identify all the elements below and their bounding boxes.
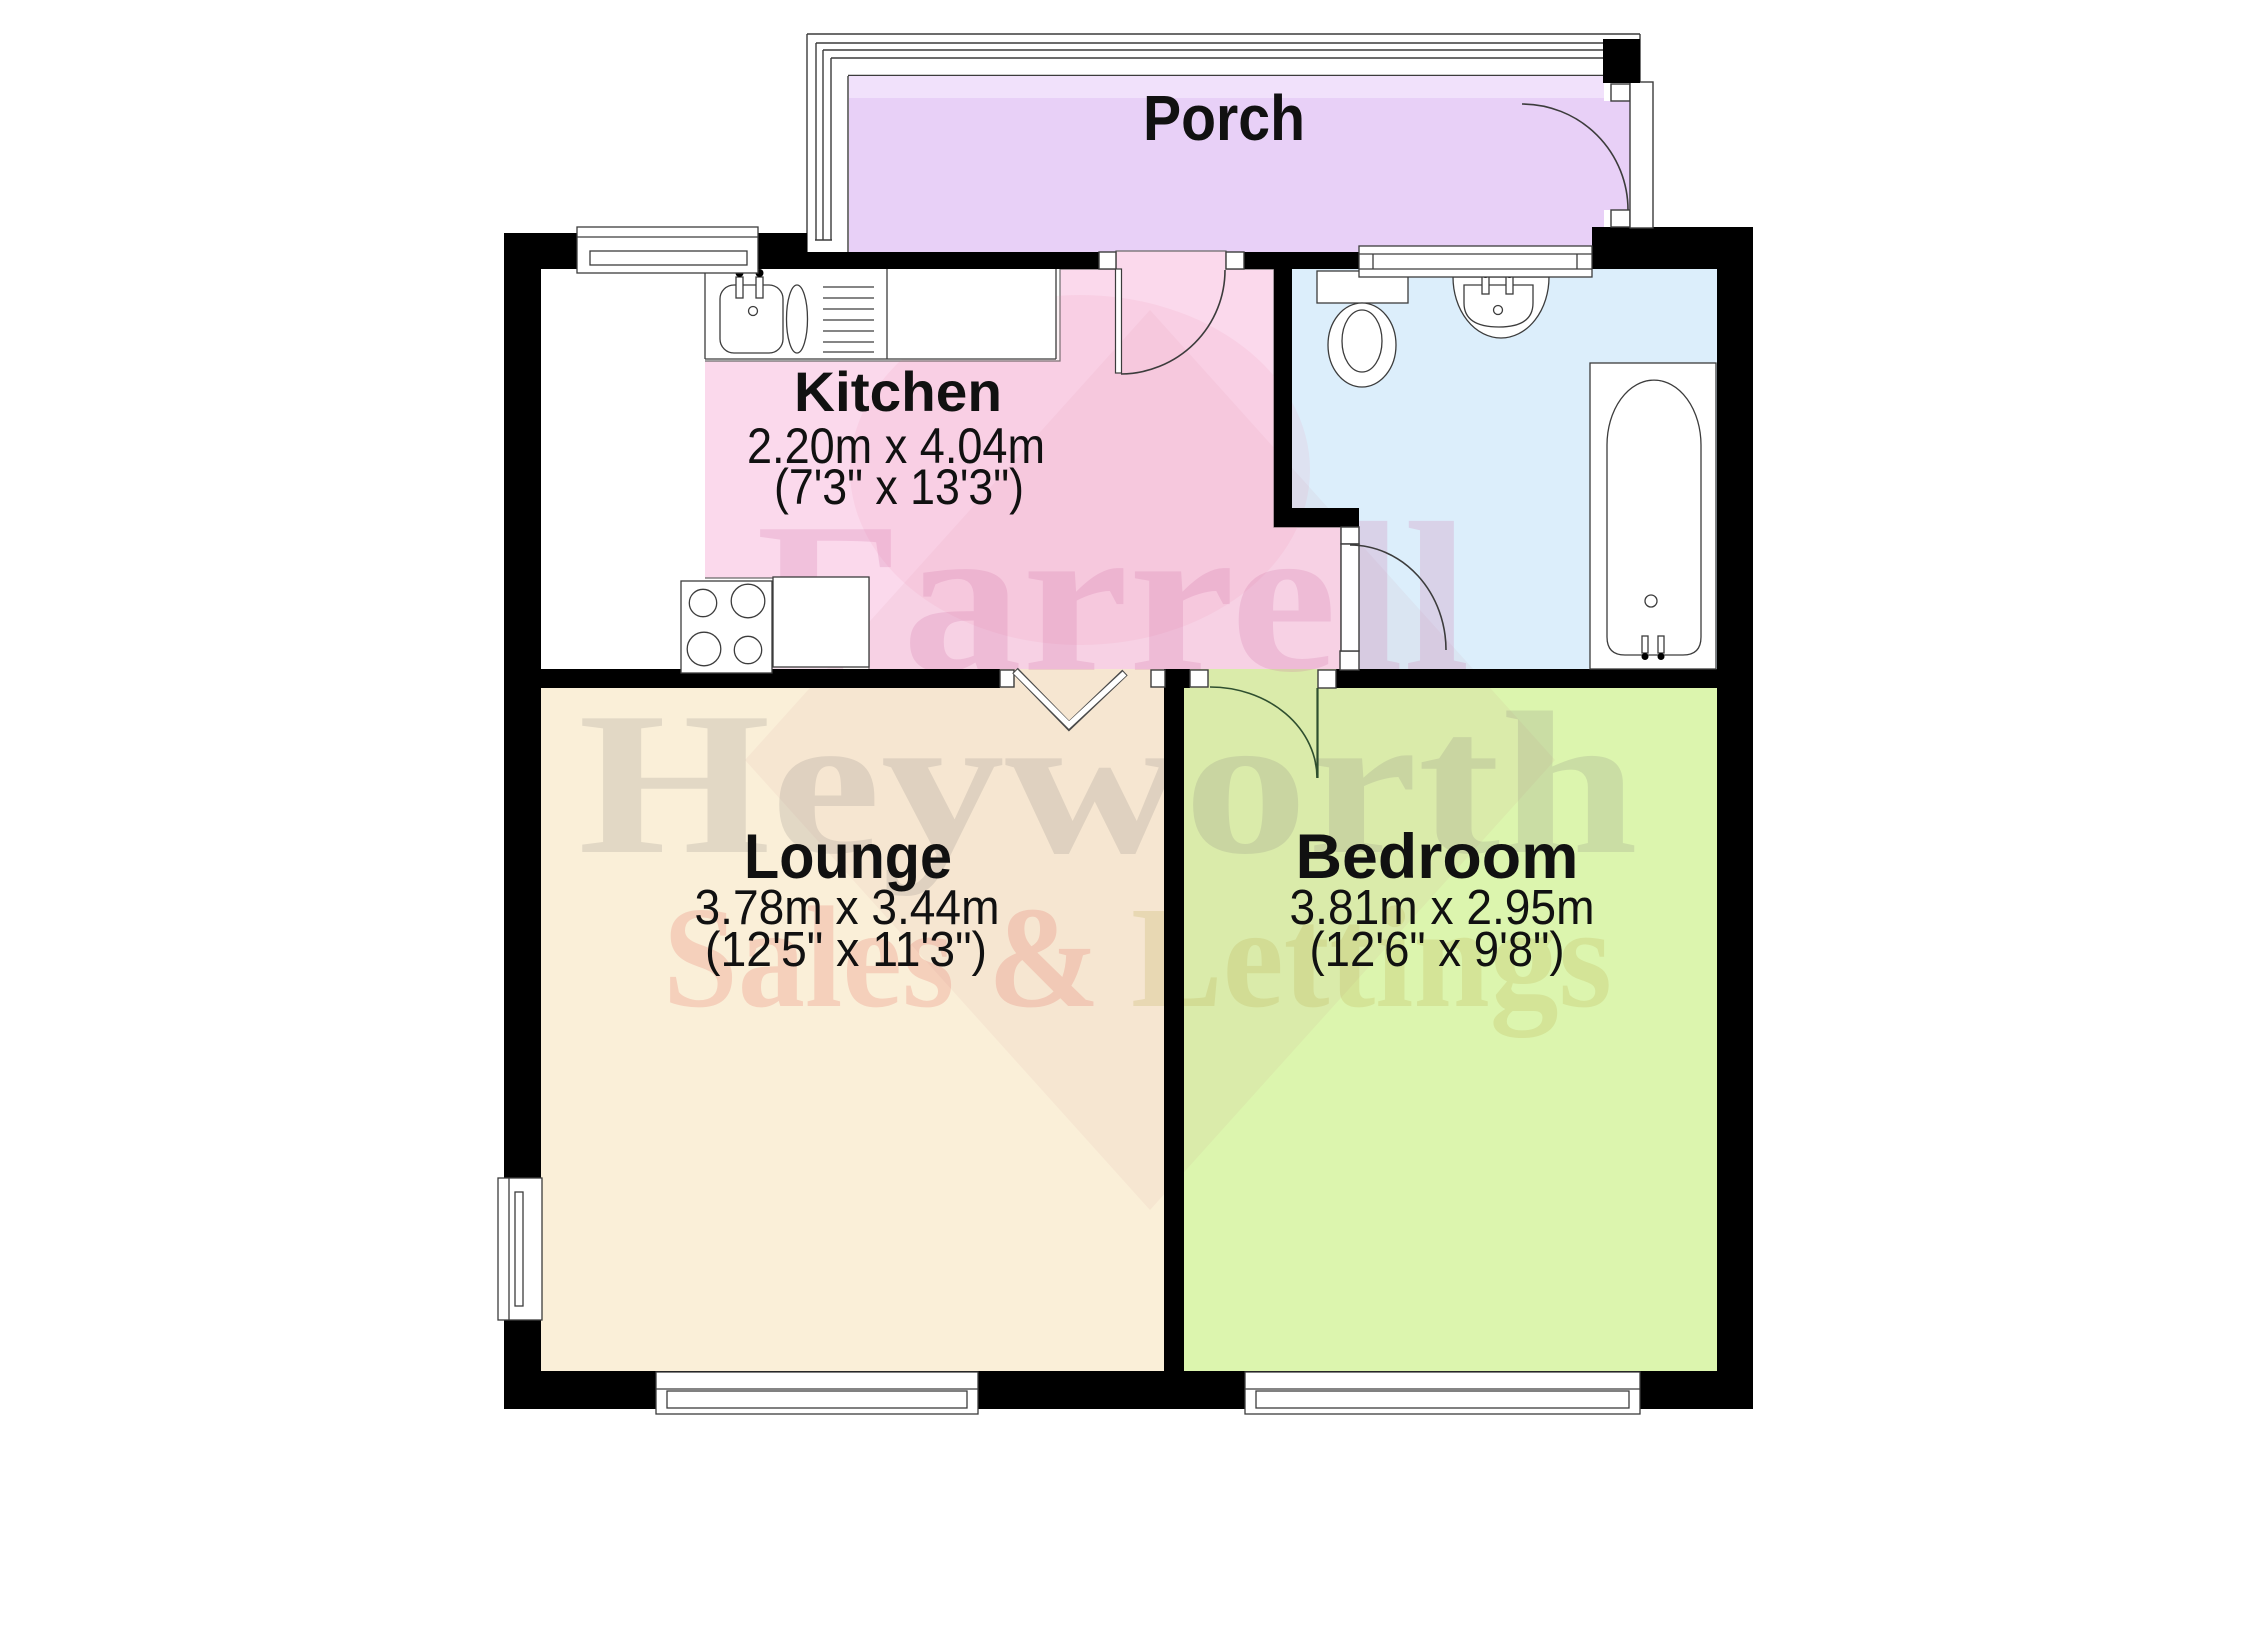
svg-text:(12'5" x 11'3"): (12'5" x 11'3"): [705, 923, 987, 977]
svg-text:Porch: Porch: [1143, 82, 1305, 154]
svg-text:(12'6" x 9'8"): (12'6" x 9'8"): [1310, 923, 1565, 977]
svg-text:Kitchen: Kitchen: [794, 360, 1002, 423]
svg-text:(7'3" x 13'3"): (7'3" x 13'3"): [774, 459, 1024, 515]
